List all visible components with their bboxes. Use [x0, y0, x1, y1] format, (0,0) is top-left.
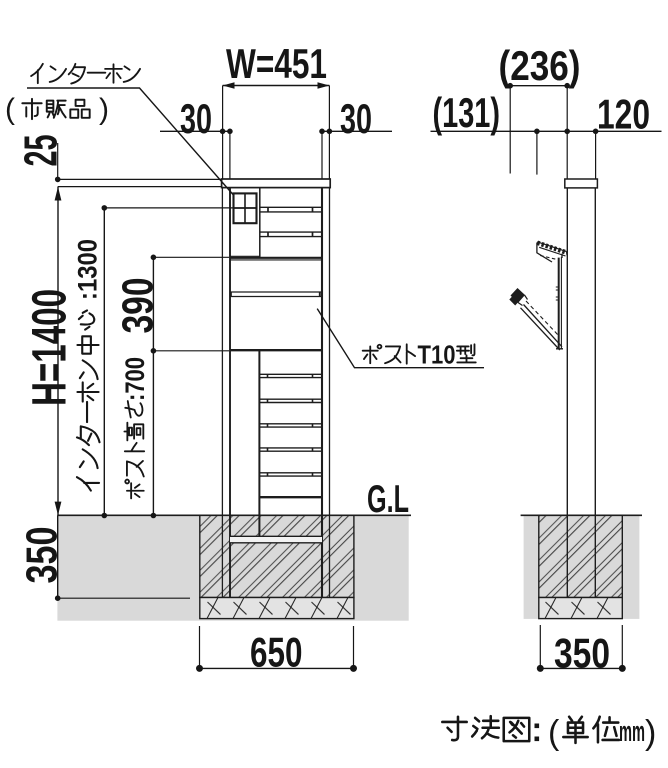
svg-text:350: 350	[17, 527, 66, 584]
svg-text::1300: :1300	[73, 239, 103, 300]
svg-text::700: :700	[120, 357, 150, 401]
svg-text:W=451: W=451	[226, 40, 327, 87]
svg-text:(236): (236)	[499, 42, 581, 89]
svg-text:650: 650	[250, 629, 303, 676]
svg-text:H=1400: H=1400	[24, 289, 77, 406]
svg-text:25: 25	[15, 135, 67, 167]
svg-text:G.L: G.L	[367, 478, 409, 521]
svg-text:): )	[99, 93, 109, 126]
svg-text:): )	[645, 714, 656, 752]
svg-text:(131): (131)	[433, 89, 501, 136]
svg-text:350: 350	[554, 630, 610, 677]
svg-text:T10: T10	[418, 339, 456, 369]
svg-text:390: 390	[113, 278, 162, 334]
svg-text:mm: mm	[619, 716, 645, 748]
svg-text:120: 120	[597, 91, 650, 138]
svg-text:30: 30	[340, 95, 372, 142]
svg-text:(: (	[5, 93, 15, 126]
svg-text:(: (	[548, 714, 560, 752]
svg-text:30: 30	[180, 95, 212, 142]
